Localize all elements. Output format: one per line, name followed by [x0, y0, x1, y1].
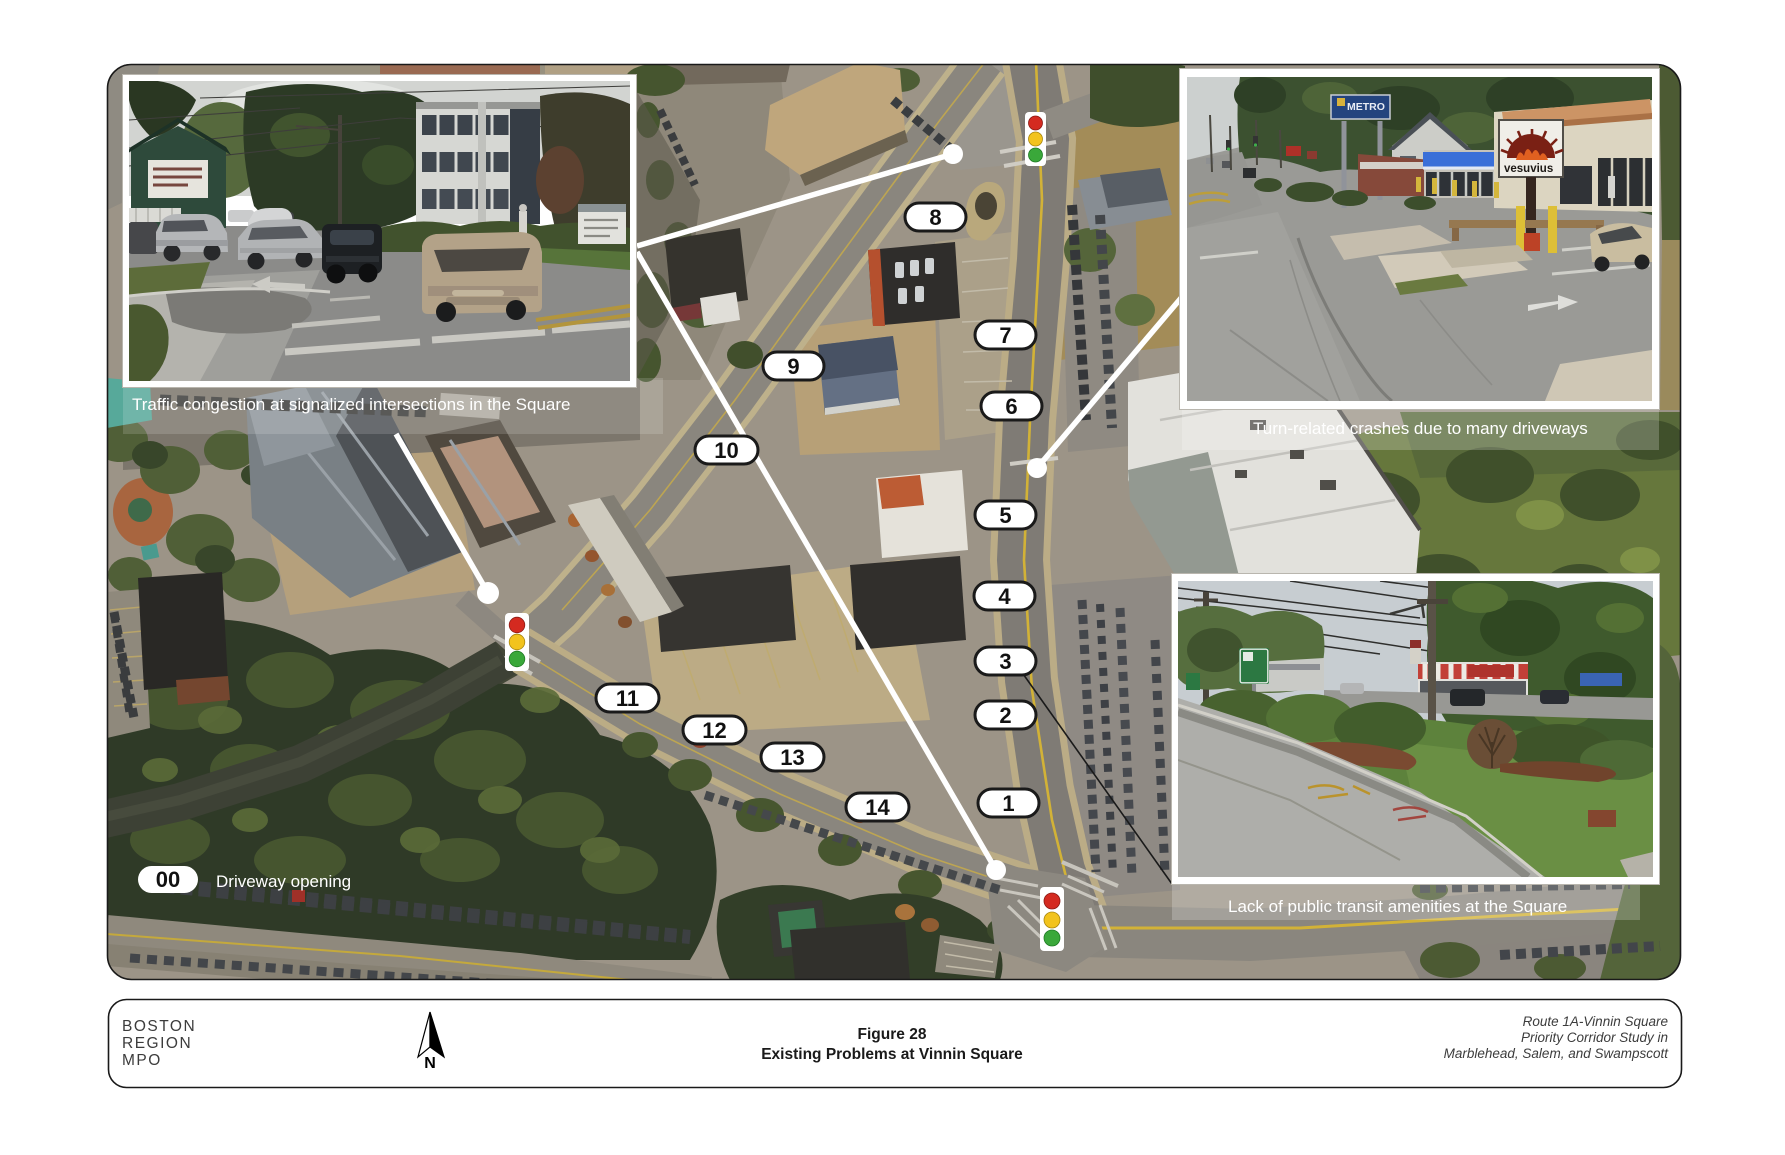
svg-text:1: 1: [1002, 791, 1014, 816]
svg-text:Driveway opening: Driveway opening: [216, 872, 351, 891]
svg-text:8: 8: [929, 205, 941, 230]
svg-text:REGION: REGION: [122, 1035, 192, 1052]
svg-text:METRO: METRO: [1347, 101, 1385, 113]
svg-text:5: 5: [999, 503, 1011, 528]
svg-text:11: 11: [616, 686, 639, 711]
svg-text:13: 13: [780, 745, 804, 770]
svg-text:3: 3: [999, 649, 1011, 674]
svg-text:14: 14: [865, 795, 890, 820]
svg-text:7: 7: [999, 323, 1011, 348]
svg-text:Priority Corridor Study in: Priority Corridor Study in: [1521, 1030, 1668, 1045]
svg-text:Route 1A-Vinnin Square: Route 1A-Vinnin Square: [1523, 1014, 1668, 1029]
svg-text:Turn-related crashes due to ma: Turn-related crashes due to many drivewa…: [1253, 419, 1588, 438]
svg-text:Existing Problems at Vinnin Sq: Existing Problems at Vinnin Square: [761, 1046, 1023, 1063]
svg-text:Lack of public transit ameniti: Lack of public transit amenities at the …: [1228, 897, 1567, 916]
svg-text:00: 00: [156, 867, 180, 892]
svg-text:N: N: [424, 1055, 436, 1072]
svg-text:Marblehead, Salem, and Swampsc: Marblehead, Salem, and Swampscott: [1444, 1046, 1670, 1061]
svg-text:MPO: MPO: [122, 1052, 162, 1069]
svg-text:BOSTON: BOSTON: [122, 1018, 196, 1035]
svg-text:2: 2: [999, 703, 1011, 728]
svg-text:10: 10: [714, 438, 738, 463]
svg-text:Figure 28: Figure 28: [858, 1026, 927, 1043]
svg-text:12: 12: [702, 718, 726, 743]
svg-text:4: 4: [998, 584, 1011, 609]
svg-text:6: 6: [1005, 394, 1017, 419]
svg-text:Traffic congestion at signaliz: Traffic congestion at signalized interse…: [132, 395, 570, 414]
svg-text:9: 9: [787, 354, 799, 379]
svg-text:vesuvius: vesuvius: [1504, 163, 1553, 175]
